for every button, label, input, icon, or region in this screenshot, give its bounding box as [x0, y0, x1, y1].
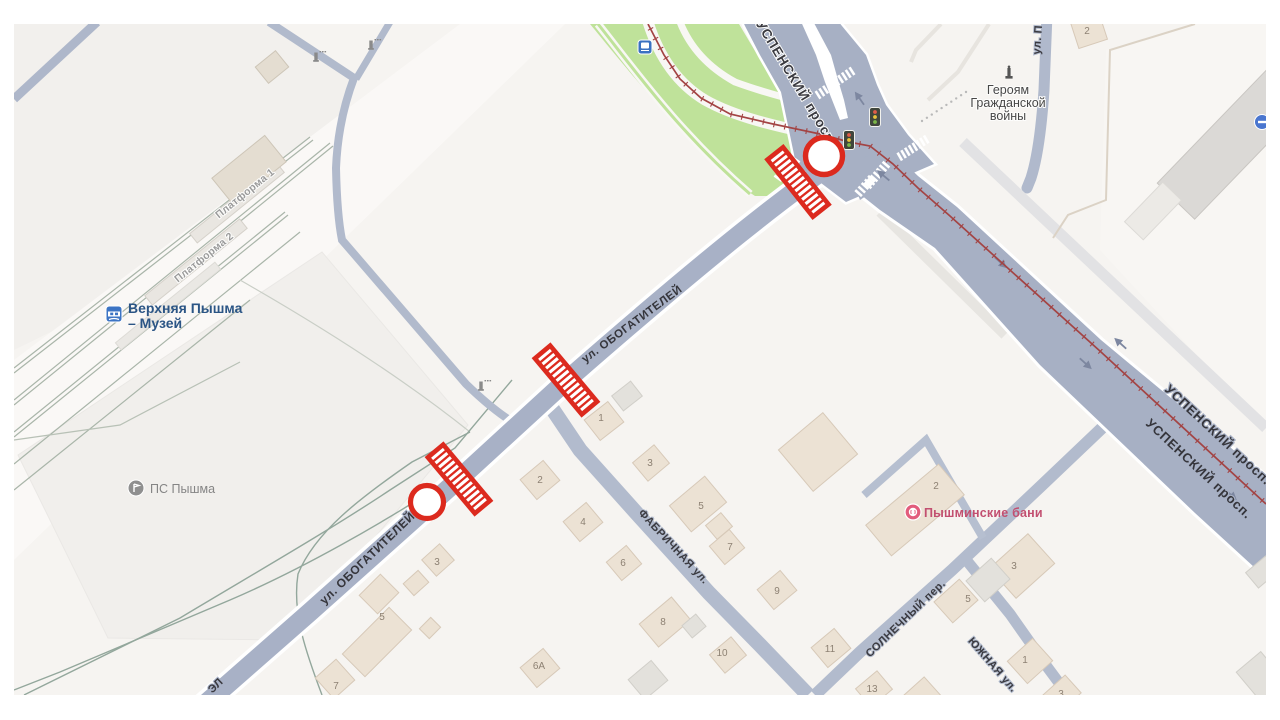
- svg-text:7: 7: [333, 681, 339, 692]
- svg-text:– Музей: – Музей: [128, 315, 182, 331]
- svg-text:3: 3: [647, 458, 653, 469]
- svg-text:1: 1: [1022, 655, 1028, 666]
- svg-text:5: 5: [965, 594, 971, 605]
- svg-text:11: 11: [825, 644, 836, 655]
- svg-text:8: 8: [660, 617, 666, 628]
- svg-text:Верхняя Пышма: Верхняя Пышма: [128, 300, 243, 316]
- svg-text:2: 2: [1084, 26, 1090, 37]
- svg-text:3: 3: [1011, 561, 1017, 572]
- svg-text:2: 2: [933, 481, 939, 492]
- svg-text:Героям: Героям: [987, 83, 1029, 97]
- svg-text:2: 2: [537, 475, 543, 486]
- svg-text:9: 9: [774, 586, 780, 597]
- svg-text:6: 6: [620, 558, 626, 569]
- svg-text:ул. П: ул. П: [1031, 25, 1045, 55]
- svg-text:6А: 6А: [533, 661, 546, 672]
- svg-text:войны: войны: [990, 109, 1026, 123]
- svg-text:4: 4: [580, 517, 586, 528]
- svg-text:1: 1: [598, 413, 604, 424]
- svg-text:3: 3: [434, 557, 440, 568]
- svg-text:Пышминские бани: Пышминские бани: [924, 506, 1043, 520]
- svg-text:Гражданской: Гражданской: [970, 96, 1045, 110]
- svg-text:7: 7: [727, 542, 733, 553]
- svg-text:ПС Пышма: ПС Пышма: [150, 482, 215, 496]
- svg-text:5: 5: [698, 501, 704, 512]
- svg-text:5: 5: [379, 612, 385, 623]
- svg-text:13: 13: [866, 684, 878, 695]
- svg-text:10: 10: [716, 648, 728, 659]
